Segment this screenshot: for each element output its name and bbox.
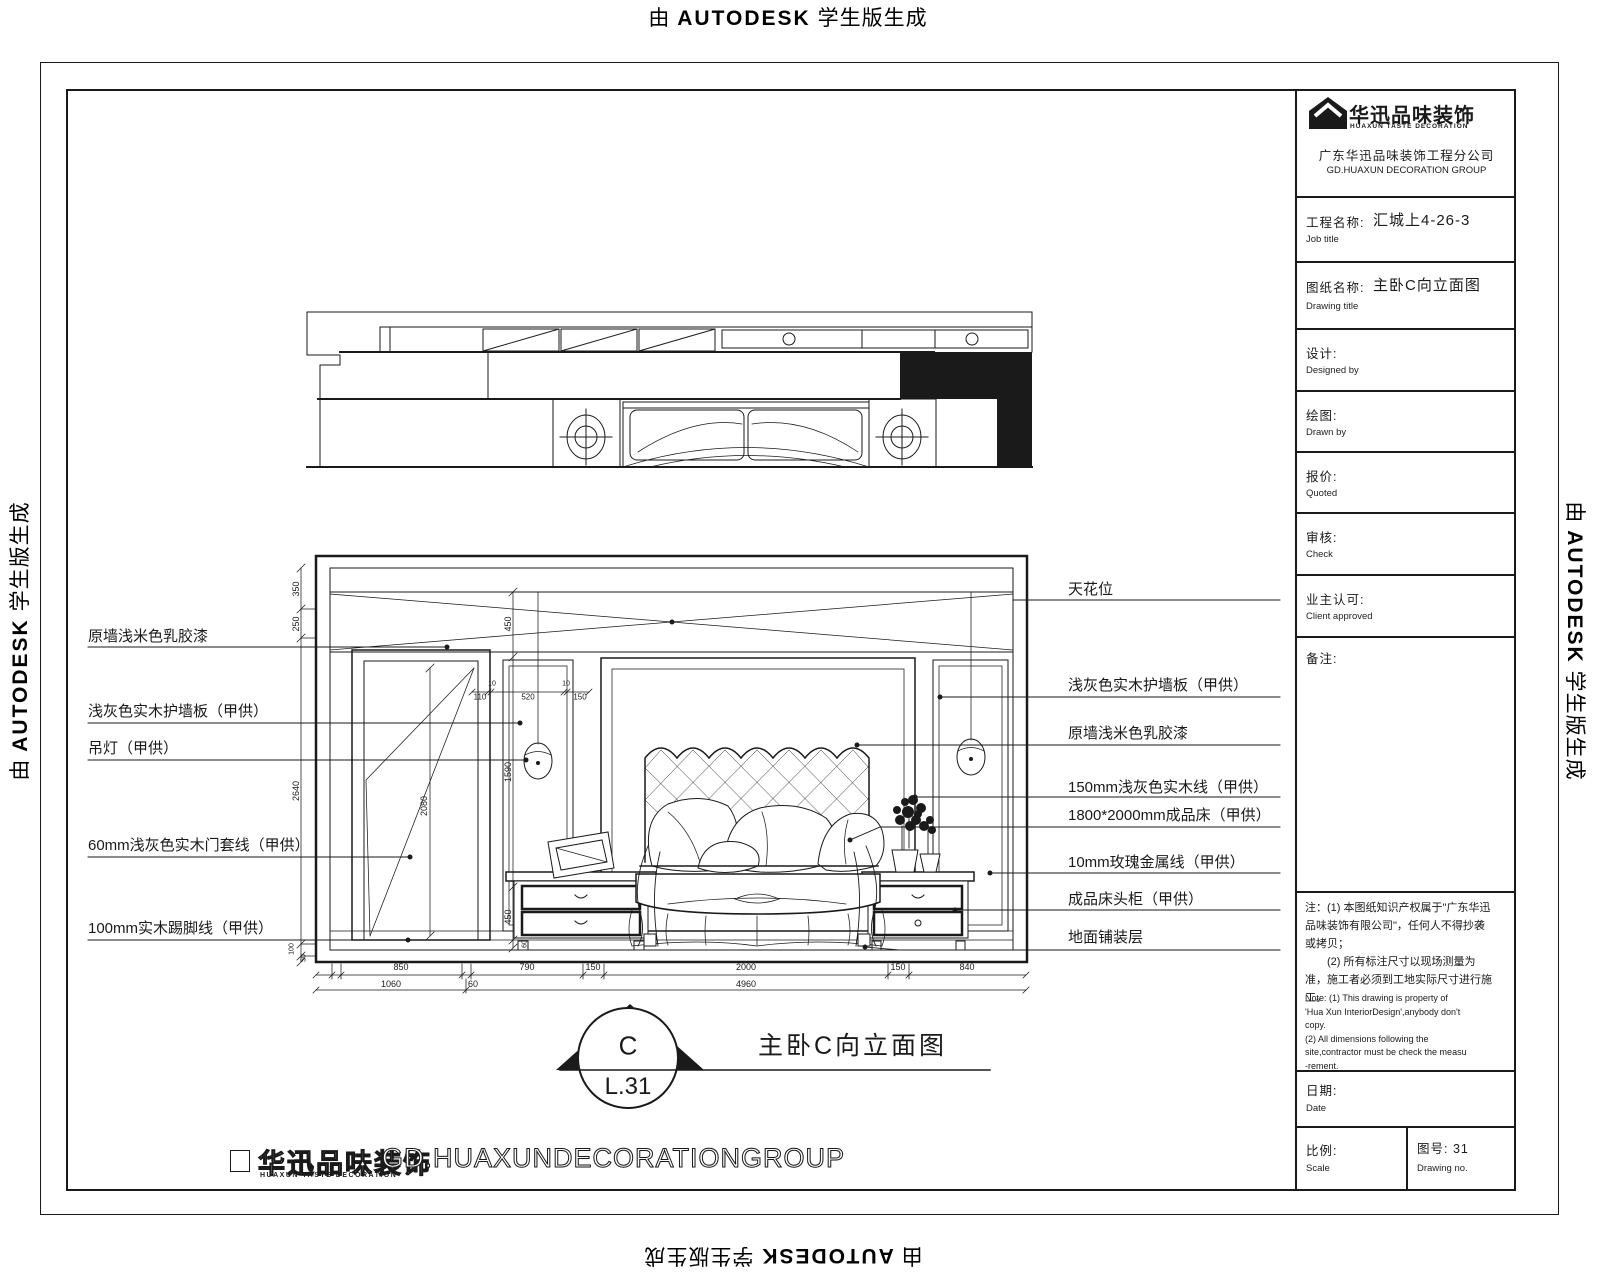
dim-text: 50 [301,954,308,962]
drawing-sub: Drawing title [1306,301,1358,312]
drawing-sheet: 由 AUTODESK 学生版生成 由 AUTODESK 学生版生成 由 AUTO… [0,0,1600,1280]
drawing-value: 主卧C向立面图 [1373,274,1481,295]
dim-text: 2000 [736,962,756,972]
footer-logo-subtext: HUAXUN TASTE DECORATION [260,1172,397,1179]
label-wood-trim: 150mm浅灰色实木线（甲供） [1068,776,1268,797]
plan-bed [623,402,869,467]
plan-nightstand-left [553,399,620,467]
dim-text: 150 [573,693,586,702]
label-wall-panel-left: 浅灰色实木护墙板（甲供） [88,700,268,721]
job-label: 工程名称: [1306,212,1364,231]
dim-text: 150 [585,962,600,972]
dim-text: 110 [474,693,487,702]
titleblock-job-cell: 工程名称: 汇城上4-26-3 Job title [1297,198,1516,263]
plan-view [307,312,1032,467]
job-sub: Job title [1306,234,1339,245]
label-wall-paint-left: 原墙浅米色乳胶漆 [88,625,208,646]
company-name-cn: 广东华迅品味装饰工程分公司 [1297,145,1516,164]
titleblock-quote-cell: 报价: Quoted [1297,453,1516,514]
dim-text: 60 [468,979,478,989]
titleblock-client-cell: 业主认可: Client approved [1297,576,1516,638]
company-name-en: GD.HUAXUN DECORATION GROUP [1297,165,1516,176]
dim-text: 1060 [381,979,401,989]
dim-text: 1590 [503,762,513,782]
note-chinese: 注：(1) 本图纸知识产权属于"广东华迅 品味装饰有限公司"，任何人不得抄袭 或… [1305,899,1511,1007]
bed-skirt [629,910,885,946]
note-english: Note: (1) This drawing is property of 'H… [1305,992,1511,1072]
bed [629,748,885,946]
label-door-casing: 60mm浅灰色实木门套线（甲供） [88,834,310,855]
dim-text: 520 [521,693,534,702]
job-value: 汇城上4-26-3 [1373,209,1470,230]
dim-text: 150 [890,962,905,972]
marker-sheet-code: L.31 [605,1073,652,1101]
label-nightstand: 成品床头柜（甲供） [1068,888,1203,909]
pendant-lamp-right [957,592,985,775]
dim-text: 10 [488,681,496,688]
titleblock-remark-cell: 备注: [1297,638,1516,893]
elevation-view [316,556,1027,962]
label-ceiling: 天花位 [1068,578,1113,599]
dim-text: 10 [562,681,570,688]
dim-text: 450 [503,616,513,631]
dim-text: 840 [959,962,974,972]
plan-nightstand-right [869,399,936,467]
company-logo-icon [1309,97,1347,129]
label-wall-paint-right: 原墙浅米色乳胶漆 [1068,722,1188,743]
drawing-no-cell: 图号: 31 Drawing no. [1408,1128,1516,1190]
titleblock-note-cell: 注：(1) 本图纸知识产权属于"广东华迅 品味装饰有限公司"，任何人不得抄袭 或… [1297,893,1516,1072]
footer-company-text: GD.HUAXUNDECORATIONGROUP [382,1143,845,1174]
dim-text: 250 [291,616,301,631]
label-wall-panel-right: 浅灰色实木护墙板（甲供） [1068,674,1248,695]
dim-text: 350 [291,581,301,596]
plan-column-solid [900,352,1032,467]
label-skirting: 100mm实木踢脚线（甲供） [88,917,273,938]
dim-text: 4960 [736,979,756,989]
ceiling-band [330,592,1013,652]
dim-text: 2640 [291,781,301,801]
label-bed: 1800*2000mm成品床（甲供） [1068,804,1271,825]
label-floor: 地面铺装层 [1068,926,1143,947]
label-metal-trim: 10mm玫瑰金属线（甲供） [1068,851,1245,872]
footer-logo-box [230,1150,250,1172]
company-logo-tagline: HUAXUN TASTE DECORATION [1350,123,1468,130]
titleblock-check-cell: 审核: Check [1297,514,1516,576]
view-title: 主卧C向立面图 [758,1026,947,1062]
dim-text: 100 [289,943,296,955]
titleblock-logo-cell: 华迅品味装饰 HUAXUN TASTE DECORATION 广东华迅品味装饰工… [1297,89,1516,198]
marker-letter: C [619,1031,638,1062]
pendant-lamp-left [524,592,552,779]
titleblock-date-cell: 日期: Date [1297,1072,1516,1128]
photo-frame [548,832,614,878]
title-block: 华迅品味装饰 HUAXUN TASTE DECORATION 广东华迅品味装饰工… [1295,89,1516,1191]
dim-text: 60 [522,940,529,948]
label-pendant-lamp: 吊灯（甲供） [88,737,178,758]
titleblock-scale-number-cell: 比例: Scale 图号: 31 Drawing no. [1297,1128,1516,1190]
titleblock-drawing-cell: 图纸名称: 主卧C向立面图 Drawing title [1297,263,1516,330]
titleblock-drawn-cell: 绘图: Drawn by [1297,392,1516,453]
dim-text: 850 [393,962,408,972]
dim-text: 450 [503,909,513,924]
dim-text: 2080 [419,796,429,816]
titleblock-design-cell: 设计: Designed by [1297,330,1516,392]
dim-text: 790 [519,962,534,972]
drawing-label: 图纸名称: [1306,277,1364,296]
scale-cell: 比例: Scale [1297,1128,1408,1190]
nightstand-left [506,872,656,950]
